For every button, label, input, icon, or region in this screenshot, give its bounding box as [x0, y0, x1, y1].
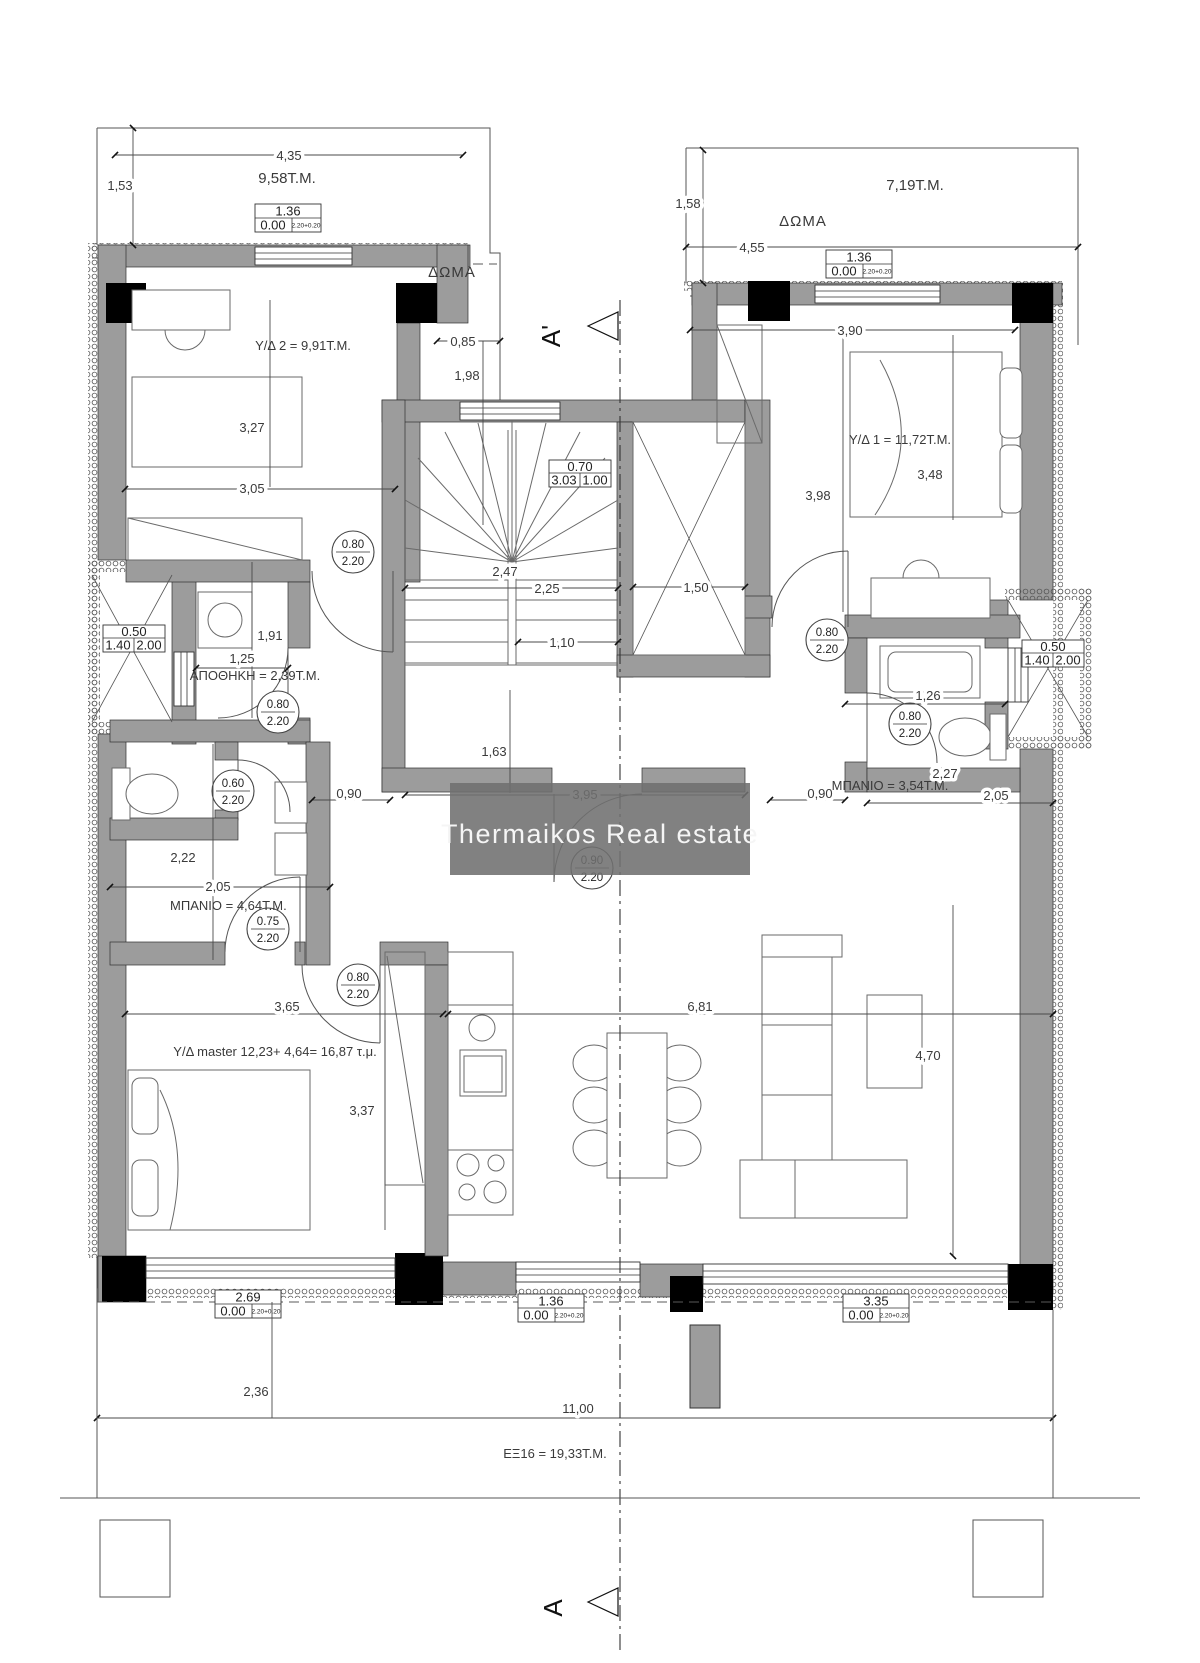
svg-text:2.20+0.20: 2.20+0.20 [862, 269, 891, 276]
dim-label: 2,22 [170, 850, 195, 865]
dim-label: 6,81 [687, 999, 712, 1014]
elevator [633, 422, 745, 655]
dim-label: 1,50 [683, 580, 708, 595]
dim-label: 1,26 [915, 688, 940, 703]
master-label: Υ/Δ master 12,23+ 4,64= 16,87 τ.μ. [173, 1044, 376, 1059]
dim-label: 0,85 [450, 334, 475, 349]
door-width: 0.80 [816, 627, 838, 639]
dim-label: 1,58 [675, 196, 700, 211]
window-tag: 1.360.002.20+0.20 [518, 1294, 584, 1323]
svg-text:1.40: 1.40 [105, 638, 130, 653]
dim-label: 3,90 [837, 323, 862, 338]
bedroom2-label: Υ/Δ 2 = 9,91Τ.Μ. [255, 338, 351, 353]
door-height: 2.20 [222, 795, 244, 807]
door-width: 0.80 [347, 972, 369, 984]
dim-label: 4,70 [915, 1048, 940, 1063]
window-tag: 3.350.002.20+0.20 [843, 1294, 909, 1323]
washing-machine [198, 592, 252, 648]
window-tag: 0.703.031.00 [549, 459, 611, 488]
bath-left-label: ΜΠΑΝΙΟ = 4,64Τ.Μ. [170, 898, 287, 913]
svg-text:2.69: 2.69 [235, 1290, 260, 1305]
door-width: 0.60 [222, 778, 244, 790]
svg-text:0.00: 0.00 [260, 218, 285, 233]
roof-left-label: ΔΩΜΑ [428, 264, 476, 281]
svg-text:2.00: 2.00 [136, 638, 161, 653]
watermark-text: Thermaikos Real estate [441, 819, 759, 849]
dim-label: 1,98 [454, 368, 479, 383]
watermark: Thermaikos Real estate [441, 783, 759, 875]
dim-label: 4,55 [739, 240, 764, 255]
svg-text:2.20+0.20: 2.20+0.20 [251, 1309, 280, 1316]
svg-text:0.00: 0.00 [523, 1308, 548, 1323]
door-width: 0.80 [899, 711, 921, 723]
window-top-left [255, 247, 352, 265]
stairs [405, 420, 745, 665]
svg-text:2.20+0.20: 2.20+0.20 [554, 1313, 583, 1320]
dim-label: 1,25 [229, 651, 254, 666]
section-label-bottom: A [538, 1599, 568, 1617]
section-arrow-bottom [588, 1588, 618, 1616]
door-height: 2.20 [267, 716, 289, 728]
svg-text:1.40: 1.40 [1024, 653, 1049, 668]
dim-label: 3,48 [917, 467, 942, 482]
svg-text:3.03: 3.03 [551, 473, 576, 488]
window-tag: 0.501.402.00 [103, 624, 165, 653]
dim-label: 3,65 [274, 999, 299, 1014]
door-tag: 0.752.20 [247, 908, 289, 950]
dim-label: 2,05 [983, 788, 1008, 803]
door-width: 0.80 [342, 539, 364, 551]
svg-text:2.00: 2.00 [1055, 653, 1080, 668]
floor-plan-page: 0.802.20 0.802.20 0.602.20 0.752.20 0.80… [0, 0, 1200, 1663]
svg-text:0.00: 0.00 [220, 1304, 245, 1319]
balcony-label: ΕΞ16 = 19,33Τ.Μ. [503, 1446, 607, 1461]
window-tag: 2.690.002.20+0.20 [215, 1290, 281, 1319]
dim-label: 3,27 [239, 420, 264, 435]
dim-label: 3,37 [349, 1103, 374, 1118]
dim-label: 11,00 [562, 1401, 594, 1416]
dim-label: 4,35 [276, 148, 301, 163]
svg-text:2.20+0.20: 2.20+0.20 [879, 1313, 908, 1320]
door-tag: 0.802.20 [806, 619, 848, 661]
kitchen [448, 952, 513, 1215]
door-tag: 0.802.20 [337, 964, 379, 1006]
roof-right-label: ΔΩΜΑ [779, 213, 827, 230]
dim-label: 1,53 [107, 178, 132, 193]
dim-label: 0,90 [807, 786, 832, 801]
dim-label: 1,63 [481, 744, 506, 759]
window-bottom-right [703, 1264, 1008, 1284]
door-width: 0.75 [257, 916, 279, 928]
svg-text:2.20+0.20: 2.20+0.20 [291, 223, 320, 230]
toilet-left [112, 768, 178, 820]
window-tag: 0.501.402.00 [1022, 639, 1084, 668]
svg-text:3.35: 3.35 [863, 1294, 888, 1309]
svg-text:1.36: 1.36 [538, 1294, 563, 1309]
window-stair [460, 402, 560, 420]
dim-label: 3,98 [805, 488, 830, 503]
door-tag: 0.802.20 [332, 531, 374, 573]
window-bottom-master [146, 1258, 395, 1278]
storage-label: ΑΠΟΘΗΚΗ = 2,39Τ.Μ. [190, 668, 320, 683]
door-height: 2.20 [899, 728, 921, 740]
door-tag: 0.802.20 [889, 703, 931, 745]
dim-label: 2,36 [243, 1384, 268, 1399]
section-label-top: A' [536, 325, 566, 347]
window-tag: 1.360.002.20+0.20 [826, 250, 892, 279]
dining-table [573, 1033, 701, 1178]
dim-label: 2,47 [492, 564, 517, 579]
roof-area-left-label: 9,58T.M. [258, 170, 316, 187]
dim-label: 3,05 [239, 481, 264, 496]
bath-right-label: ΜΠΑΝΙΟ = 3,54Τ.Μ. [832, 778, 949, 793]
svg-text:0.00: 0.00 [848, 1308, 873, 1323]
dim-label: 1,10 [549, 635, 574, 650]
bedroom1-label: Υ/Δ 1 = 11,72Τ.Μ. [849, 432, 951, 447]
door-tag: 0.802.20 [257, 691, 299, 733]
dim-label: 1,91 [257, 628, 282, 643]
window-top-right [815, 285, 940, 303]
section-arrow-top [588, 312, 618, 340]
svg-text:1.00: 1.00 [582, 473, 607, 488]
window-tag: 1.360.002.20+0.20 [255, 204, 321, 233]
svg-text:0.00: 0.00 [831, 264, 856, 279]
door-height: 2.20 [342, 556, 364, 568]
dim-label: 2,05 [205, 879, 230, 894]
bed-2 [128, 290, 302, 560]
door-tag: 0.602.20 [212, 770, 254, 812]
svg-text:1.36: 1.36 [275, 204, 300, 219]
svg-text:1.36: 1.36 [846, 250, 871, 265]
door-height: 2.20 [347, 989, 369, 1001]
roof-area-right-label: 7,19T.M. [886, 177, 944, 194]
dim-label: 2,25 [534, 581, 559, 596]
dim-label: 0,90 [336, 786, 361, 801]
window-bottom-middle [516, 1262, 640, 1282]
floor-plan-canvas: 0.802.20 0.802.20 0.602.20 0.752.20 0.80… [0, 0, 1200, 1663]
door-height: 2.20 [816, 644, 838, 656]
door-width: 0.80 [267, 699, 289, 711]
door-height: 2.20 [257, 933, 279, 945]
